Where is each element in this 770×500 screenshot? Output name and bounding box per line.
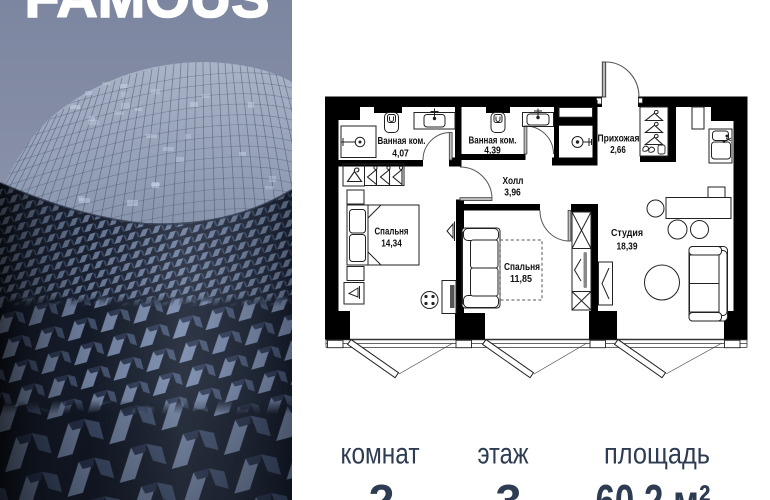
svg-text:4,39: 4,39	[484, 145, 501, 157]
svg-text:Холл: Холл	[503, 175, 524, 187]
svg-text:Спальня: Спальня	[504, 261, 540, 273]
svg-text:комнат: комнат	[341, 438, 420, 471]
svg-text:Спальня: Спальня	[375, 226, 409, 238]
svg-text:18,39: 18,39	[617, 241, 638, 253]
svg-text:Ванная ком.: Ванная ком.	[378, 135, 426, 147]
svg-text:4,07: 4,07	[392, 148, 409, 160]
svg-text:3: 3	[496, 475, 522, 500]
svg-text:11,85: 11,85	[510, 273, 532, 285]
svg-text:Студия: Студия	[611, 227, 643, 239]
svg-text:Прихожая: Прихожая	[598, 133, 640, 145]
svg-text:площадь: площадь	[604, 438, 710, 471]
svg-text:этаж: этаж	[478, 438, 529, 471]
svg-text:3,96: 3,96	[504, 187, 521, 199]
svg-text:2: 2	[369, 475, 395, 500]
svg-text:14,34: 14,34	[381, 238, 402, 250]
svg-text:60,2 м²: 60,2 м²	[596, 475, 711, 500]
svg-text:2,66: 2,66	[610, 144, 626, 156]
